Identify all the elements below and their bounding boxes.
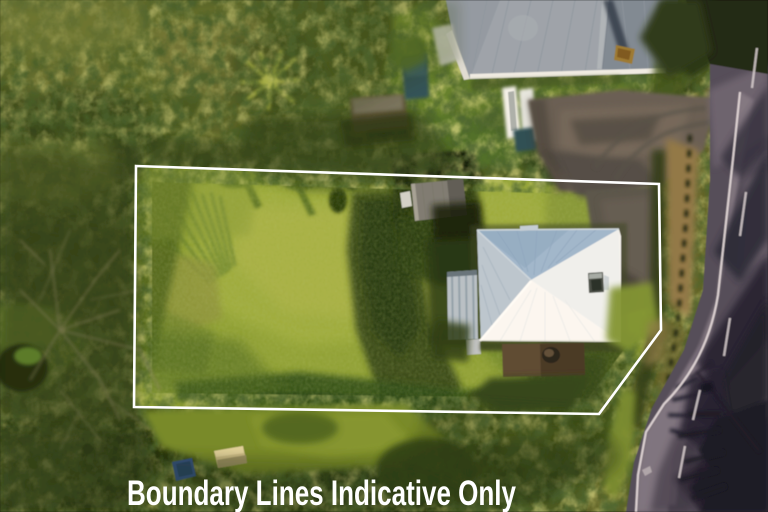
- svg-text:Boundary Lines Indicative Only: Boundary Lines Indicative Only: [127, 474, 516, 512]
